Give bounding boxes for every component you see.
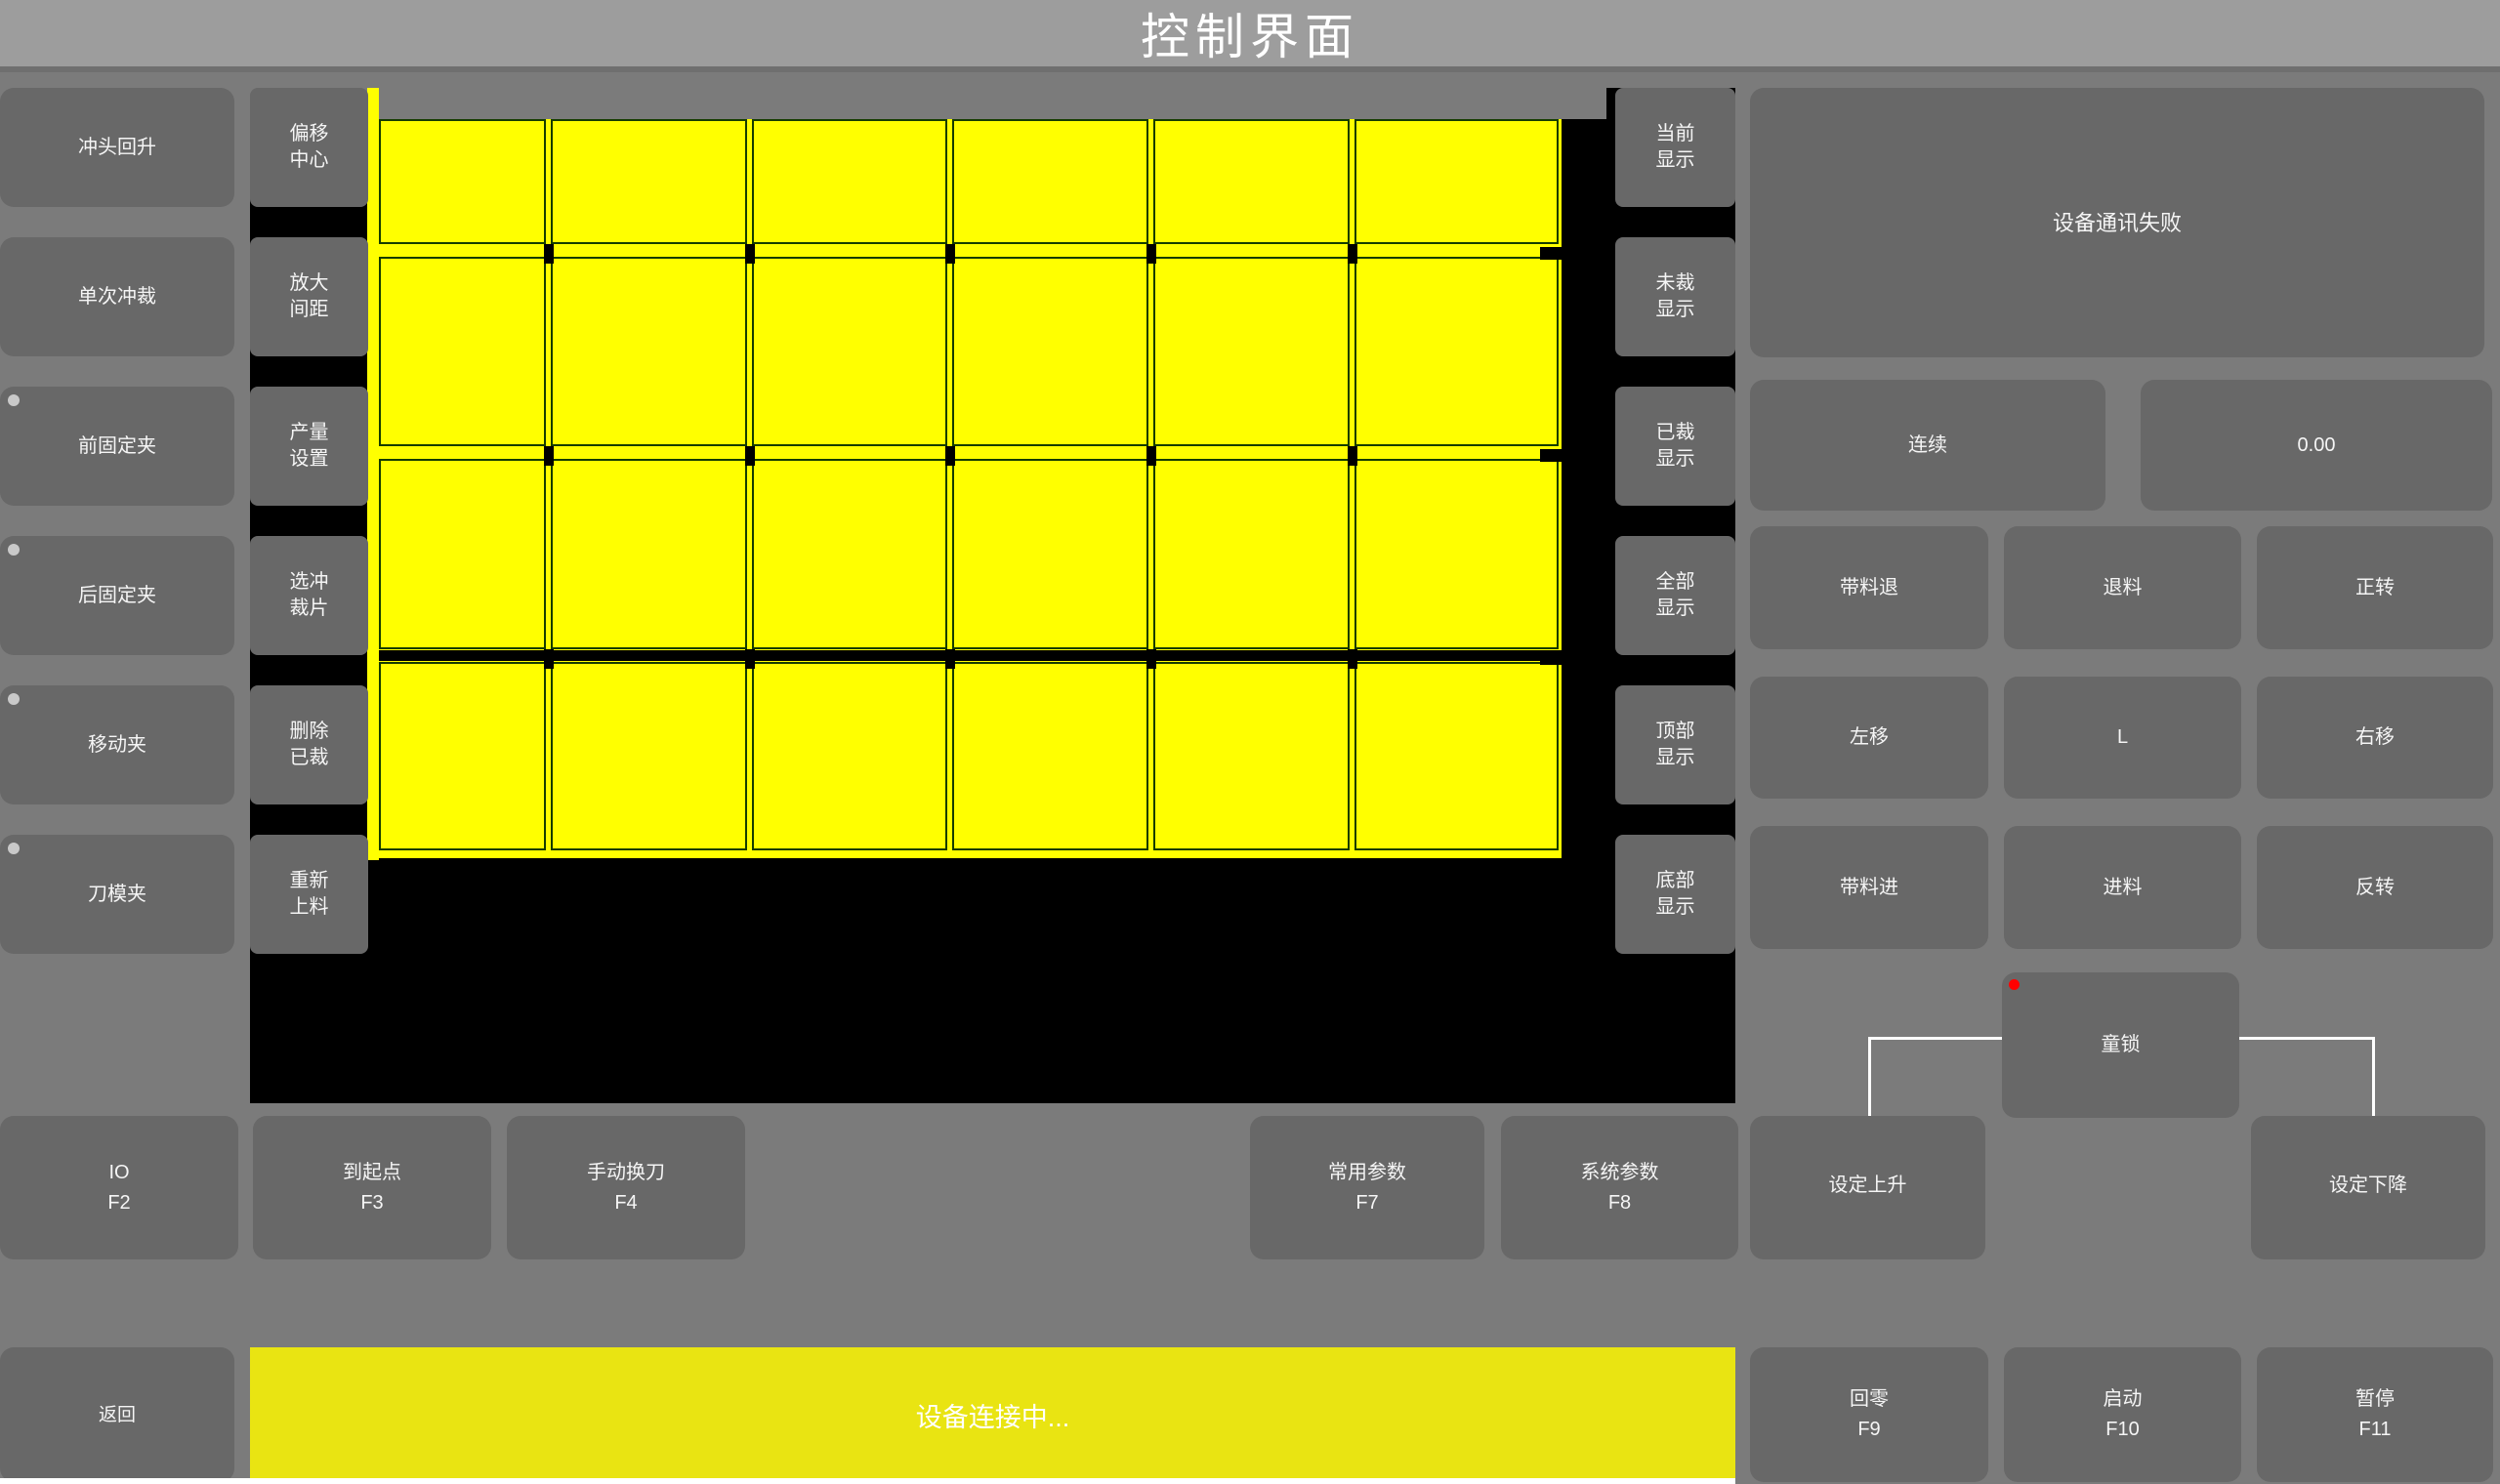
cut-mark: [1146, 446, 1156, 466]
cut-mark: [1146, 244, 1156, 264]
move-left-button[interactable]: 左移: [1750, 677, 1988, 799]
button-label: 常用参数: [1328, 1160, 1406, 1186]
sheet-piece[interactable]: [551, 119, 747, 244]
offset-center-button[interactable]: 偏移 中心: [250, 88, 368, 207]
clamp-button-column: 冲头回升 单次冲裁 前固定夹 后固定夹 移动夹 刀模夹: [0, 88, 234, 954]
fkey-label: F4: [614, 1190, 637, 1216]
button-label: 带料退: [1840, 575, 1898, 601]
cut-mark: [544, 446, 554, 466]
sheet-piece[interactable]: [1354, 459, 1559, 649]
button-label: 设定下降: [2329, 1173, 2407, 1199]
button-label: 未裁 显示: [1656, 270, 1695, 323]
cut-mark: [544, 649, 554, 669]
io-f2-button[interactable]: IOF2: [0, 1116, 238, 1259]
sheet-piece[interactable]: [952, 119, 1148, 244]
to-origin-f3-button[interactable]: 到起点F3: [253, 1116, 491, 1259]
cut-mark: [1348, 446, 1357, 466]
sheet-piece[interactable]: [752, 119, 947, 244]
front-clamp-button[interactable]: 前固定夹: [0, 387, 234, 506]
button-label: 冲头回升: [78, 135, 156, 161]
sheet-piece[interactable]: [952, 459, 1148, 649]
cut-mark: [745, 649, 755, 669]
set-rise-button[interactable]: 设定上升: [1750, 1116, 1985, 1259]
sheet-piece[interactable]: [551, 257, 747, 446]
move-right-button[interactable]: 右移: [2257, 677, 2493, 799]
connection-status-bar: 设备连接中...: [250, 1347, 1735, 1482]
bottom-edge-strip: [0, 1478, 1735, 1484]
page-title: 控制界面: [1141, 0, 1359, 68]
reverse-rotation-button[interactable]: 反转: [2257, 826, 2493, 949]
show-current-button[interactable]: 当前 显示: [1615, 88, 1735, 207]
sheet-piece[interactable]: [1354, 662, 1559, 850]
message-text: 设备通讯失败: [2053, 210, 2182, 236]
fkey-label: F2: [107, 1190, 130, 1216]
sheet-left-edge: [367, 88, 379, 860]
fkey-label: F9: [1857, 1417, 1880, 1443]
button-label: 手动换刀: [587, 1160, 665, 1186]
button-label: 童锁: [2102, 1032, 2141, 1058]
control-screen: 控制界面 冲头回升 单次冲裁 前固定夹 后固定夹 移动夹 刀模夹 偏移 中心 放…: [0, 0, 2500, 1484]
sheet-piece[interactable]: [379, 257, 546, 446]
button-label: 移动夹: [88, 732, 146, 759]
button-label: 连续: [1908, 433, 1947, 459]
cut-mark: [945, 649, 955, 669]
set-lower-button[interactable]: 设定下降: [2251, 1116, 2485, 1259]
button-label: 偏移 中心: [290, 121, 329, 174]
sheet-piece[interactable]: [752, 257, 947, 446]
sheet-piece[interactable]: [1153, 662, 1350, 850]
system-params-f8-button[interactable]: 系统参数F8: [1501, 1116, 1738, 1259]
button-label: 暂停: [2355, 1386, 2395, 1413]
delete-cut-button[interactable]: 删除 已裁: [250, 685, 368, 804]
button-label: 左移: [1850, 724, 1889, 751]
button-label: 放大 间距: [290, 270, 329, 323]
forward-rotation-button[interactable]: 正转: [2257, 526, 2493, 649]
sheet-piece[interactable]: [952, 257, 1148, 446]
zoom-spacing-button[interactable]: 放大 间距: [250, 237, 368, 356]
jog-control-grid: 带料退 退料 正转 左移 L 右移 带料进 进料 反转: [1750, 526, 2493, 949]
fkey-label: F3: [360, 1190, 383, 1216]
edge-cut-mark: [1540, 247, 1562, 260]
die-clamp-button[interactable]: 刀模夹: [0, 835, 234, 954]
button-label: 退料: [2104, 575, 2143, 601]
sheet-piece[interactable]: [1153, 119, 1350, 244]
button-label: 系统参数: [1581, 1160, 1659, 1186]
button-label: 反转: [2355, 875, 2395, 901]
button-label: 回零: [1850, 1386, 1889, 1413]
button-label: 选冲 裁片: [290, 569, 329, 622]
sheet-piece[interactable]: [1153, 257, 1350, 446]
fkey-label: F11: [2359, 1417, 2392, 1443]
single-punch-button[interactable]: 单次冲裁: [0, 237, 234, 356]
button-label: 当前 显示: [1656, 121, 1695, 174]
common-params-f7-button[interactable]: 常用参数F7: [1250, 1116, 1484, 1259]
button-label: 返回: [99, 1402, 136, 1428]
button-label: 启动: [2104, 1386, 2143, 1413]
cut-mark: [544, 244, 554, 264]
button-label: 带料进: [1840, 875, 1898, 901]
child-lock-button[interactable]: 童锁: [2002, 972, 2239, 1118]
edge-cut-mark: [1540, 449, 1562, 462]
continuous-mode-button[interactable]: 连续: [1750, 380, 2105, 511]
cut-mark: [745, 446, 755, 466]
sheet-piece[interactable]: [952, 662, 1148, 850]
layout-tool-column: 偏移 中心 放大 间距 产量 设置 选冲 裁片 删除 已裁 重新 上料: [250, 88, 368, 954]
button-label: L: [2117, 724, 2128, 751]
rear-clamp-button[interactable]: 后固定夹: [0, 536, 234, 655]
home-f9-button[interactable]: 回零F9: [1750, 1347, 1988, 1482]
fkey-label: F10: [2105, 1417, 2139, 1443]
show-bottom-button[interactable]: 底部 显示: [1615, 835, 1735, 954]
fkey-label: F8: [1608, 1190, 1631, 1216]
value-display[interactable]: 0.00: [2141, 380, 2492, 511]
sheet-piece[interactable]: [1354, 119, 1559, 244]
lock-indicator-dot: [2009, 979, 2020, 990]
sheet-piece[interactable]: [551, 662, 747, 850]
connector-line: [1868, 1037, 2002, 1040]
button-label: 已裁 显示: [1656, 420, 1695, 473]
button-label: 单次冲裁: [78, 284, 156, 310]
status-dot: [8, 843, 20, 854]
retract-material-button[interactable]: 退料: [2004, 526, 2241, 649]
sheet-piece[interactable]: [379, 459, 546, 649]
display-filter-column: 当前 显示 未裁 显示 已裁 显示 全部 显示 顶部 显示 底部 显示: [1615, 88, 1735, 954]
l-button[interactable]: L: [2004, 677, 2241, 799]
back-button[interactable]: 返回: [0, 1347, 234, 1482]
reload-material-button[interactable]: 重新 上料: [250, 835, 368, 954]
title-bar: 控制界面: [0, 0, 2500, 72]
button-label: 底部 显示: [1656, 868, 1695, 921]
show-cut-button[interactable]: 已裁 显示: [1615, 387, 1735, 506]
button-label: 重新 上料: [290, 868, 329, 921]
sheet-piece[interactable]: [551, 459, 747, 649]
sheet-piece[interactable]: [752, 459, 947, 649]
sheet-piece[interactable]: [752, 662, 947, 850]
button-label: 顶部 显示: [1656, 719, 1695, 771]
button-label: 删除 已裁: [290, 719, 329, 771]
status-dot: [8, 544, 20, 556]
yield-settings-button[interactable]: 产量 设置: [250, 387, 368, 506]
connector-line: [2239, 1037, 2375, 1040]
button-label: 右移: [2355, 724, 2395, 751]
connector-line: [2372, 1037, 2375, 1117]
select-piece-button[interactable]: 选冲 裁片: [250, 536, 368, 655]
pause-f11-button[interactable]: 暂停F11: [2257, 1347, 2493, 1482]
button-label: 进料: [2104, 875, 2143, 901]
sheet-piece[interactable]: [379, 119, 546, 244]
value-text: 0.00: [2298, 433, 2336, 459]
sheet-piece[interactable]: [1354, 257, 1559, 446]
cut-mark: [945, 446, 955, 466]
cut-mark: [945, 244, 955, 264]
button-label: 设定上升: [1829, 1173, 1907, 1199]
device-status-message: 设备通讯失败: [1750, 88, 2484, 357]
status-text: 设备连接中...: [916, 1396, 1070, 1434]
feed-back-with-material-button[interactable]: 带料退: [1750, 526, 1988, 649]
button-label: 正转: [2355, 575, 2395, 601]
status-dot: [8, 394, 20, 406]
show-uncut-button[interactable]: 未裁 显示: [1615, 237, 1735, 356]
cut-mark: [1348, 244, 1357, 264]
status-dot: [8, 693, 20, 705]
manual-tool-change-f4-button[interactable]: 手动换刀F4: [507, 1116, 745, 1259]
button-label: IO: [108, 1160, 129, 1186]
sheet-piece[interactable]: [379, 662, 546, 850]
button-label: 前固定夹: [78, 433, 156, 460]
button-label: 产量 设置: [290, 420, 329, 473]
sheet-piece[interactable]: [1153, 459, 1350, 649]
material-sheet: [379, 119, 1562, 858]
button-label: 刀模夹: [88, 882, 146, 908]
cut-mark: [1146, 649, 1156, 669]
button-label: 到起点: [343, 1160, 401, 1186]
punch-raise-button[interactable]: 冲头回升: [0, 88, 234, 207]
edge-cut-mark: [1540, 652, 1562, 665]
cut-mark: [1348, 649, 1357, 669]
feed-in-with-material-button[interactable]: 带料进: [1750, 826, 1988, 949]
thick-cut-line: [379, 650, 1562, 661]
start-f10-button[interactable]: 启动F10: [2004, 1347, 2241, 1482]
show-top-button[interactable]: 顶部 显示: [1615, 685, 1735, 804]
button-label: 全部 显示: [1656, 569, 1695, 622]
feed-material-button[interactable]: 进料: [2004, 826, 2241, 949]
cut-mark: [745, 244, 755, 264]
moving-clamp-button[interactable]: 移动夹: [0, 685, 234, 804]
show-all-button[interactable]: 全部 显示: [1615, 536, 1735, 655]
fkey-label: F7: [1355, 1190, 1378, 1216]
button-label: 后固定夹: [78, 583, 156, 609]
connector-line: [1868, 1037, 1871, 1117]
